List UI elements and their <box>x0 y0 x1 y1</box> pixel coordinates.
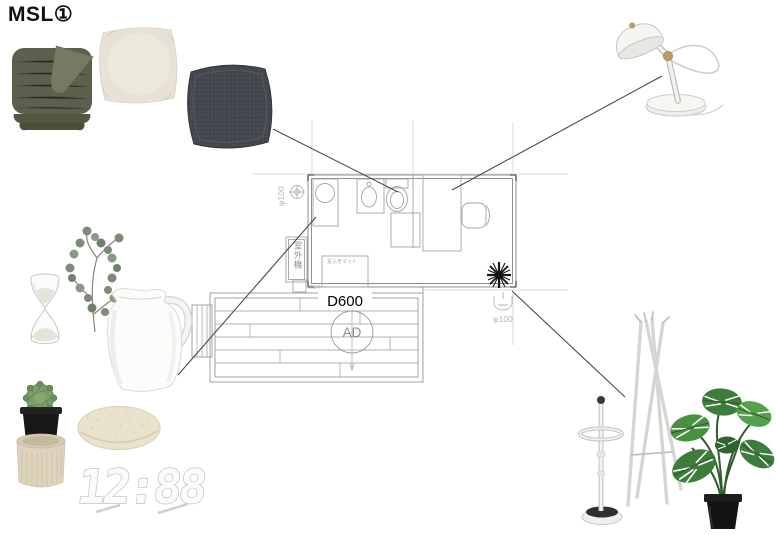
plan-plant-symbol <box>487 262 511 288</box>
throw-blanket-image <box>12 46 93 130</box>
monstera-plant-image <box>667 386 776 529</box>
clock-display: 12:88 <box>74 460 208 515</box>
deck-depth-label: D600 <box>327 293 363 310</box>
ad-label: AD <box>343 325 362 340</box>
washer-drum <box>316 184 335 203</box>
hourglass-image <box>31 274 59 344</box>
drain-left <box>289 185 305 199</box>
plan-grid-lines <box>252 121 568 345</box>
outdoor-unit-label: 室外機 <box>290 241 305 281</box>
lamp-shade <box>609 14 666 64</box>
sink-counter <box>357 179 384 213</box>
floor-plan: AD D600 足ふきマット 組立て φ100 φ100 <box>192 121 568 382</box>
plan-furniture <box>286 175 490 292</box>
room-walls <box>308 175 516 287</box>
sink-basin <box>362 187 377 207</box>
monstera-pot-rim <box>704 494 742 502</box>
moodboard-page: { "page": { "title": "MSL①" }, "plan": {… <box>0 0 776 535</box>
toilet-bowl <box>387 187 408 212</box>
beige-cushion-image <box>99 28 176 103</box>
pitcher-vase-image <box>108 289 189 392</box>
drain-left-label: φ100 <box>276 186 286 206</box>
umbrella-stand-image <box>580 396 622 525</box>
seat-pad-image <box>78 407 160 450</box>
chair <box>462 203 486 228</box>
desk-lamp-image <box>609 14 723 116</box>
connector-cushion-to-plan <box>273 129 398 192</box>
wall-corner-ticks <box>308 175 516 287</box>
moodboard-canvas: AD D600 足ふきマット 組立て φ100 φ100 <box>0 0 776 535</box>
lamp-joint-knob <box>663 51 672 60</box>
vanity-unit <box>391 213 420 247</box>
step-note-label: 組立て <box>308 283 321 289</box>
foot-mat-label: 足ふきマット <box>327 258 357 265</box>
lamp-cable-loop <box>670 46 719 74</box>
succulent-pot-rim <box>20 407 62 414</box>
digital-clock-image: 12:88 <box>74 460 208 515</box>
umbrella-stand-knob <box>597 396 605 404</box>
drain-right-label: φ100 <box>493 314 513 324</box>
connector-plan-to-coatrack <box>512 291 625 397</box>
coat-rack-image <box>628 312 681 505</box>
wood-deck <box>192 287 423 382</box>
ribbed-pot-image <box>17 434 65 487</box>
connector-plan-to-lamp <box>452 76 662 190</box>
desk <box>423 175 461 251</box>
drain-right <box>494 292 512 310</box>
dark-cushion-image <box>188 65 272 148</box>
